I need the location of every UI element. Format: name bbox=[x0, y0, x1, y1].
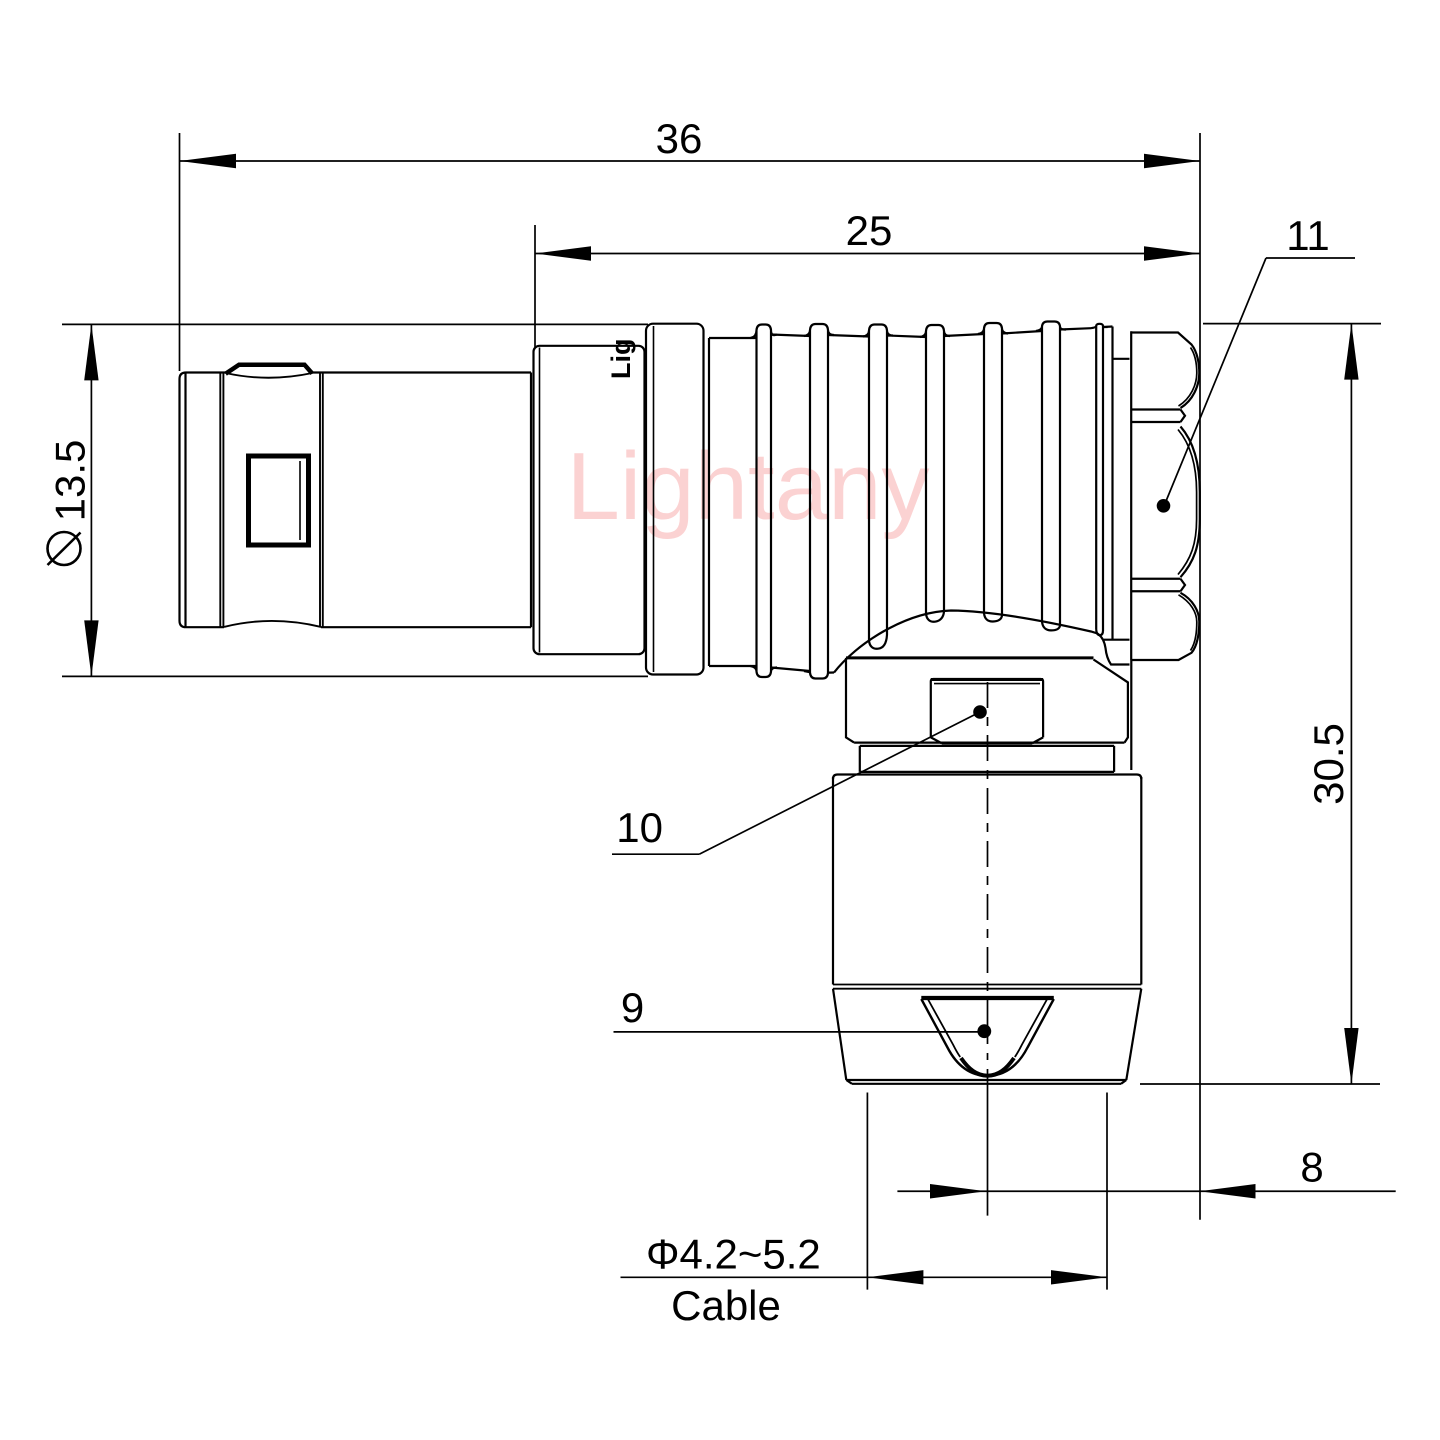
svg-text:11: 11 bbox=[1286, 212, 1330, 259]
svg-text:13.5: 13.5 bbox=[47, 440, 94, 522]
svg-text:8: 8 bbox=[1300, 1144, 1323, 1191]
svg-text:10: 10 bbox=[616, 804, 663, 851]
svg-text:Lig: Lig bbox=[606, 339, 636, 380]
svg-text:Φ4.2~5.2: Φ4.2~5.2 bbox=[646, 1231, 821, 1278]
svg-text:36: 36 bbox=[656, 115, 703, 162]
svg-text:30.5: 30.5 bbox=[1305, 723, 1352, 805]
svg-text:9: 9 bbox=[621, 984, 644, 1031]
svg-text:Cable: Cable bbox=[671, 1282, 781, 1329]
svg-text:25: 25 bbox=[846, 207, 893, 254]
svg-text:Lightany: Lightany bbox=[567, 433, 930, 540]
